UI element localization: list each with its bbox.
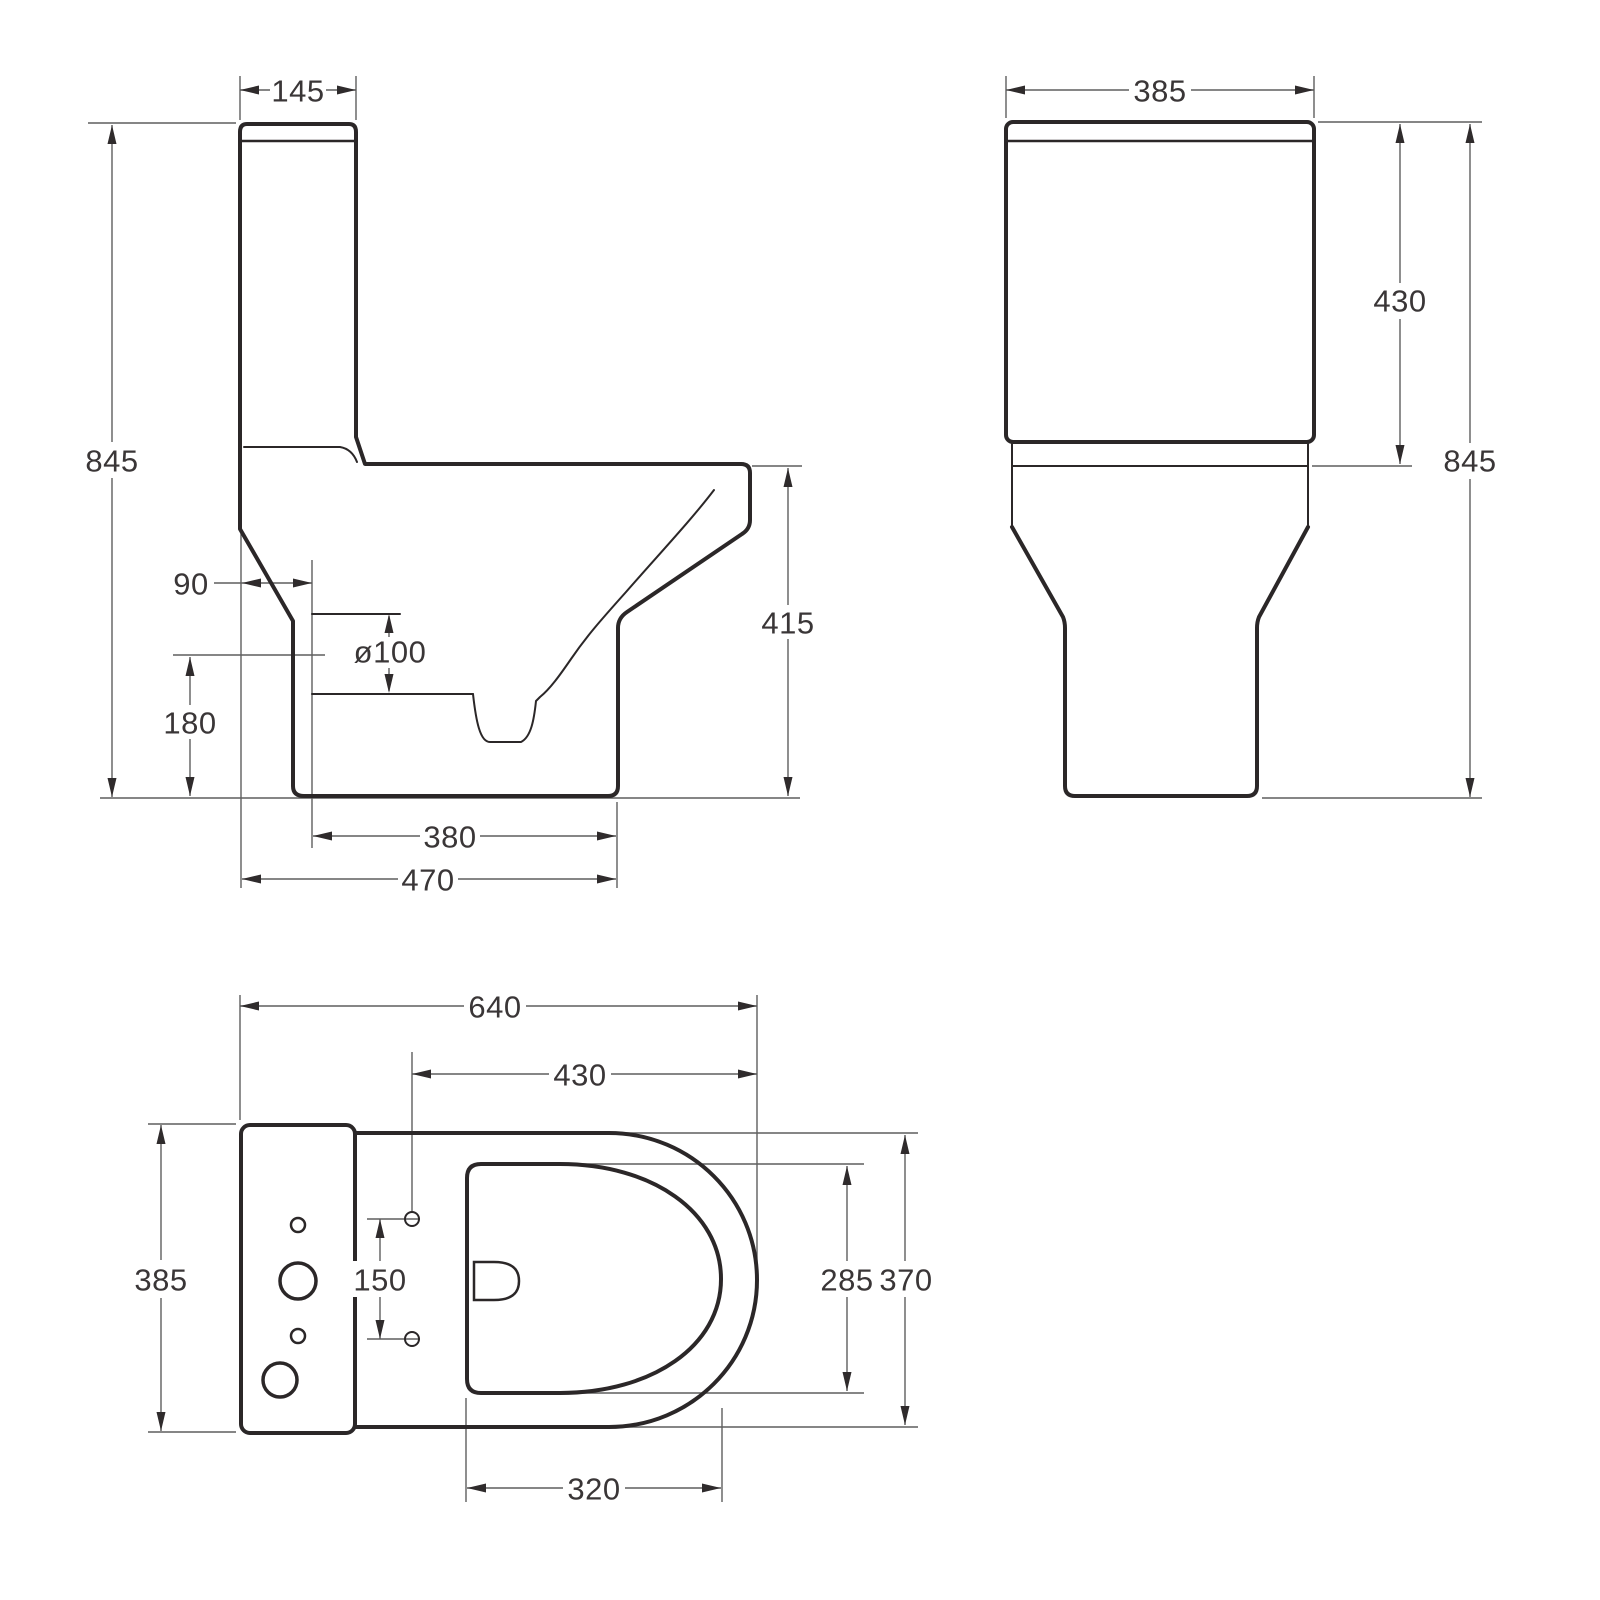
- side-outline: [240, 124, 750, 796]
- dim-label-top-seat-inner-length: 320: [567, 1472, 620, 1507]
- dim-label-top-tank-width: 385: [134, 1263, 187, 1298]
- dim-label-side-outlet-diameter: ø100: [354, 635, 427, 670]
- dim-label-side-base-depth: 380: [423, 820, 476, 855]
- top-tank-hole-large-corner: [263, 1363, 297, 1397]
- top-seat-inner-outline: [467, 1164, 721, 1393]
- dim-label-side-outlet-height: 180: [163, 706, 216, 741]
- technical-drawing-canvas: 145 845 90 ø100 180 415 380 470 385 430 …: [0, 0, 1600, 1600]
- dim-label-top-overall-length: 640: [468, 990, 521, 1025]
- dim-label-side-tank-depth: 145: [271, 74, 324, 109]
- top-tank-outline: [241, 1125, 355, 1433]
- dim-label-side-rim-height: 415: [761, 606, 814, 641]
- dim-label-top-seat-inner-width: 285: [820, 1263, 873, 1298]
- dim-label-side-total-height: 845: [85, 444, 138, 479]
- top-tank-hole-small-upper: [291, 1218, 305, 1232]
- dim-label-top-seat-hole-spacing: 150: [353, 1263, 406, 1298]
- dim-arrow: [108, 86, 793, 884]
- dim-label-top-bowl-width: 370: [879, 1263, 932, 1298]
- top-bowl-outline: [355, 1133, 757, 1427]
- dim-label-front-tank-height: 430: [1373, 284, 1426, 319]
- front-rim-band: [1012, 442, 1308, 527]
- front-extension-lines: [1006, 76, 1482, 798]
- side-view: 145 845 90 ø100 180 415 380 470: [84, 73, 817, 898]
- front-view: 385 430 845: [1006, 73, 1500, 798]
- side-shelf-line: [244, 447, 357, 462]
- dim-label-side-overall-depth: 470: [401, 863, 454, 898]
- dim-label-front-total-height: 845: [1443, 444, 1496, 479]
- dim-label-side-outlet-offset: 90: [173, 567, 208, 602]
- side-dim-lines: [112, 90, 788, 879]
- dim-label-top-bowl-length: 430: [553, 1058, 606, 1093]
- dim-arrow: [157, 1002, 910, 1493]
- front-pedestal-outline: [1012, 527, 1308, 796]
- top-tank-hole-small-lower: [291, 1329, 305, 1343]
- side-bowl-inner-curve: [473, 490, 714, 742]
- top-view: 640 430 385 150 285 370 320: [130, 989, 935, 1507]
- top-tank-hole-large-center: [280, 1263, 316, 1299]
- top-flush-hole: [474, 1262, 519, 1300]
- drawing-page: 145 845 90 ø100 180 415 380 470 385 430 …: [0, 0, 1600, 1600]
- side-extension-lines: [88, 76, 802, 888]
- dim-label-front-tank-width: 385: [1133, 74, 1186, 109]
- top-dim-lines: [161, 1006, 905, 1488]
- front-tank-outline: [1006, 122, 1314, 442]
